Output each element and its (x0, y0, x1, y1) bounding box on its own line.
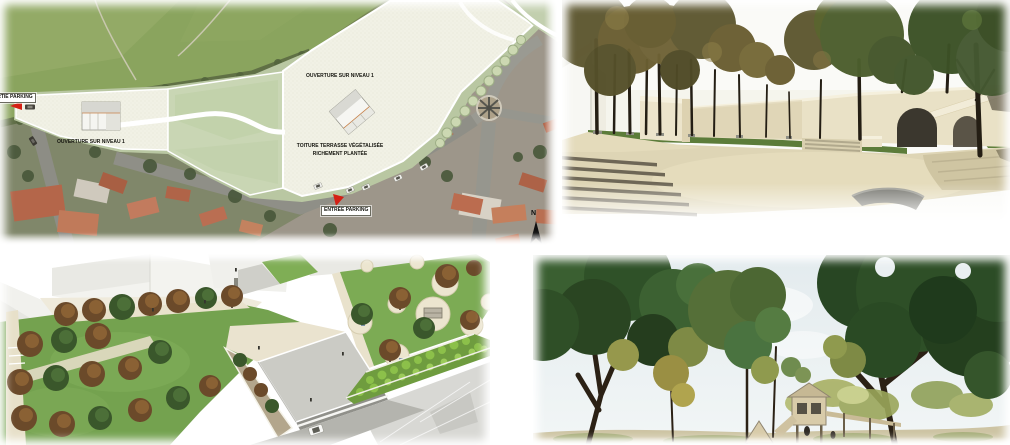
north-label: N (531, 210, 536, 217)
toiture-label: TOITURE TERRASSE VÉGÉTALISÉE RICHEMENT P… (272, 143, 408, 158)
center-steps (802, 138, 862, 152)
alley-render-graphic (533, 255, 1010, 445)
ouverture-right-label: OUVERTURE SUR NIVEAU 1 (306, 73, 374, 81)
alley-render-image (533, 255, 1010, 445)
wall-arch (897, 108, 937, 147)
project-collage: SORTIE PARKING OUVERTURE SUR NIVEAU 1 OU… (0, 0, 1010, 445)
plaza-render-graphic (562, 0, 1010, 225)
toiture-line2: RICHEMENT PLANTÉE (313, 151, 367, 157)
aerial-park-render-image (0, 252, 490, 445)
entree-parking-label: ENTRÉE PARKING (321, 206, 371, 216)
site-plan-image: SORTIE PARKING OUVERTURE SUR NIVEAU 1 OU… (0, 0, 558, 245)
terrace-building-left (82, 102, 120, 130)
roundabout (477, 96, 501, 120)
toiture-line1: TOITURE TERRASSE VÉGÉTALISÉE (297, 143, 384, 149)
sortie-parking-label: SORTIE PARKING (0, 93, 36, 103)
aerial-park-graphic (0, 252, 490, 445)
plaza-render-image (562, 0, 1010, 225)
ouverture-left-label: OUVERTURE SUR NIVEAU 1 (57, 139, 125, 147)
site-plan-graphic (0, 0, 558, 245)
